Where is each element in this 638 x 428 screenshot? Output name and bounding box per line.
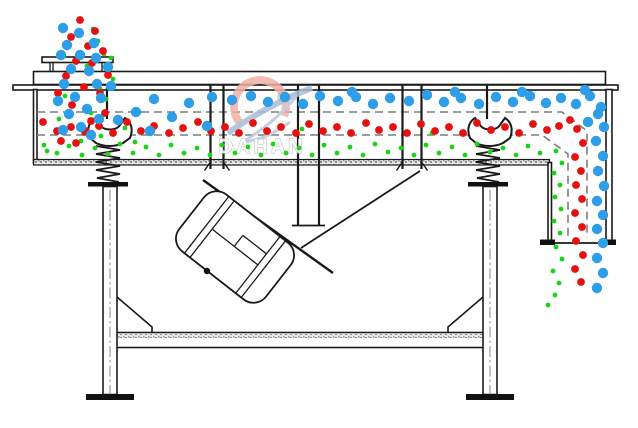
particle-dot	[284, 151, 289, 156]
particle-dot	[91, 27, 99, 35]
particle-dot	[80, 153, 85, 158]
particle-dot	[53, 96, 63, 106]
particle-dot	[89, 38, 99, 48]
particle-dot	[99, 134, 104, 139]
particle-dot	[347, 129, 355, 137]
particle-dot	[335, 151, 340, 156]
particle-dot	[87, 117, 95, 125]
particle-dot	[42, 143, 47, 148]
particle-dot	[184, 98, 194, 108]
particle-dot	[592, 196, 602, 206]
particle-dot	[546, 303, 551, 308]
particle-dot	[551, 269, 556, 274]
particle-dot	[473, 119, 481, 127]
particle-dot	[76, 16, 84, 24]
particle-dot	[475, 142, 480, 147]
particle-dot	[58, 23, 68, 33]
particle-dot	[167, 112, 177, 122]
particle-dot	[459, 129, 467, 137]
particle-dot	[207, 92, 217, 102]
particle-dot	[333, 96, 343, 106]
particle-dot	[75, 50, 85, 60]
particle-dot	[169, 143, 174, 148]
particle-dot	[58, 125, 68, 135]
particle-dot	[103, 62, 113, 72]
particle-dot	[106, 152, 111, 157]
right-gusset	[448, 297, 483, 333]
particle-dot	[541, 98, 551, 108]
particle-dot	[488, 150, 493, 155]
particle-dot	[54, 89, 62, 97]
particle-dot	[450, 145, 455, 150]
particle-dot	[389, 123, 397, 131]
particle-dot	[80, 83, 88, 91]
particle-dot	[508, 97, 518, 107]
particle-dot	[96, 93, 106, 103]
particle-dot	[259, 153, 264, 158]
particle-dot	[194, 118, 202, 126]
particle-dot	[592, 224, 602, 234]
particle-dot	[220, 143, 225, 148]
particle-dot	[202, 121, 212, 131]
particle-dot	[599, 181, 609, 191]
particle-dot	[277, 123, 285, 131]
particle-dot	[487, 126, 495, 134]
particle-dot	[501, 146, 506, 151]
particle-dot	[554, 149, 559, 154]
particle-dot	[131, 151, 136, 156]
particle-dot	[67, 144, 72, 149]
particle-dot	[526, 144, 531, 149]
particle-dot	[598, 151, 608, 161]
particle-dot	[560, 257, 565, 262]
particle-dot	[92, 79, 102, 89]
particle-dot	[445, 123, 453, 131]
particle-dot	[123, 126, 128, 131]
particle-dot	[70, 92, 80, 102]
particle-dot	[417, 120, 425, 128]
particle-dot	[104, 71, 112, 79]
particle-dot	[554, 245, 559, 250]
particle-dot	[45, 149, 50, 154]
particle-dot	[578, 195, 586, 203]
particle-dot	[292, 129, 300, 137]
particle-dot	[361, 153, 366, 158]
particle-dot	[463, 153, 468, 158]
particle-dot	[91, 53, 101, 63]
particle-dot	[123, 118, 131, 126]
particle-dot	[221, 123, 229, 131]
particle-dot	[598, 268, 608, 278]
particle-dot	[592, 283, 602, 293]
particle-dot	[263, 97, 273, 107]
particle-dot	[552, 171, 557, 176]
particle-dot	[165, 129, 173, 137]
particle-dot	[412, 153, 417, 158]
particle-dot	[557, 281, 562, 286]
particle-dot	[580, 85, 590, 95]
particle-dot	[552, 219, 557, 224]
particle-dot	[62, 40, 72, 50]
particle-dot	[76, 122, 86, 132]
vibration-motor	[169, 185, 300, 309]
particle-dot	[474, 99, 484, 109]
diagram-canvas: ® DAHAN	[0, 0, 638, 428]
particle-dot	[571, 209, 579, 217]
particles-medium-red	[39, 16, 587, 286]
particle-dot	[249, 119, 257, 127]
particle-dot	[182, 151, 187, 156]
particle-dot	[208, 153, 213, 158]
particle-dot	[195, 146, 200, 151]
particle-dot	[583, 117, 593, 127]
particle-dot	[109, 129, 117, 137]
left-foot-pad	[86, 394, 134, 400]
particle-dot	[106, 81, 116, 91]
particle-dot	[179, 124, 187, 132]
particle-dot	[57, 117, 62, 122]
particle-dot	[501, 123, 509, 131]
particle-dot	[66, 64, 76, 74]
particle-dot	[233, 151, 238, 156]
particle-dot	[431, 127, 439, 135]
particle-dot	[577, 167, 585, 175]
particle-dot	[109, 56, 114, 61]
particle-dot	[271, 142, 276, 147]
particle-dot	[55, 151, 60, 156]
particle-dot	[137, 127, 145, 135]
particle-dot	[368, 99, 378, 109]
particle-dot	[84, 66, 94, 76]
base-beam	[110, 297, 490, 348]
screen-box-lid	[13, 72, 618, 91]
particle-dot	[558, 231, 563, 236]
particle-dot	[450, 87, 460, 97]
particle-dot	[67, 123, 75, 131]
particle-dot	[560, 161, 565, 166]
particle-dot	[64, 109, 74, 119]
particle-dot	[573, 125, 581, 133]
particle-dot	[149, 94, 159, 104]
particle-dot	[385, 93, 395, 103]
particle-dot	[67, 33, 75, 41]
particle-dot	[591, 136, 601, 146]
particle-dot	[86, 130, 96, 140]
particle-dot	[577, 278, 585, 286]
particle-dot	[362, 119, 370, 127]
particle-dot	[300, 127, 305, 132]
particle-dot	[491, 92, 501, 102]
particle-dot	[246, 91, 256, 101]
particle-dot	[59, 79, 69, 89]
particle-dot	[322, 143, 327, 148]
particle-dot	[39, 118, 47, 126]
particle-dot	[598, 210, 608, 220]
particle-dot	[571, 153, 579, 161]
linear-vibrating-screen-diagram: ® DAHAN	[0, 0, 638, 428]
particle-dot	[263, 127, 271, 135]
particle-dot	[375, 126, 383, 134]
particle-dot	[529, 120, 537, 128]
particle-dot	[538, 151, 543, 156]
right-foot-pad	[466, 394, 514, 400]
particle-dot	[133, 140, 138, 145]
particle-dot	[558, 183, 563, 188]
particle-dot	[333, 123, 341, 131]
particle-dot	[559, 207, 564, 212]
particle-dot	[437, 151, 442, 156]
particle-dot	[246, 145, 251, 150]
particle-dot	[439, 97, 449, 107]
particle-dot	[68, 101, 76, 109]
particle-dot	[297, 146, 302, 151]
particle-dot	[113, 115, 123, 125]
particle-dot	[144, 145, 149, 150]
particle-dot	[404, 96, 414, 106]
particle-dot	[579, 139, 587, 147]
left-gusset	[117, 297, 152, 333]
particle-dot	[82, 104, 92, 114]
particle-dot	[227, 95, 237, 105]
particle-dot	[571, 99, 581, 109]
particle-dot	[235, 129, 243, 137]
particle-dot	[118, 142, 123, 147]
particle-dot	[57, 137, 65, 145]
particles-coarse-blue	[53, 23, 609, 293]
machine-structure	[13, 57, 618, 400]
particle-dot	[298, 99, 308, 109]
particle-dot	[424, 143, 429, 148]
particle-dot	[422, 90, 432, 100]
particle-dot	[63, 94, 68, 99]
particle-dot	[543, 126, 551, 134]
particle-dot	[315, 91, 325, 101]
right-support-leg	[466, 187, 514, 401]
particle-dot	[145, 126, 155, 136]
particle-dot	[598, 238, 608, 248]
particle-dot	[386, 150, 391, 155]
particle-dot	[74, 28, 84, 38]
particle-dot	[593, 109, 603, 119]
particle-dot	[566, 116, 574, 124]
particle-dot	[310, 153, 315, 158]
particle-dot	[553, 293, 558, 298]
motor-bolt	[204, 268, 210, 274]
particle-dot	[131, 107, 141, 117]
discharge-chute	[540, 163, 616, 246]
particle-dot	[514, 153, 519, 158]
particle-dot	[99, 47, 107, 55]
particle-dot	[515, 129, 523, 137]
particle-dot	[553, 195, 558, 200]
particle-dot	[157, 153, 162, 158]
left-support-leg	[86, 187, 134, 401]
particle-dot	[280, 92, 290, 102]
particle-dot	[592, 253, 602, 263]
particle-dot	[348, 145, 353, 150]
particle-dot	[93, 146, 98, 151]
particle-dot	[72, 139, 80, 147]
particle-dot	[347, 87, 357, 97]
particle-dot	[555, 122, 563, 130]
particle-dot	[373, 142, 378, 147]
particle-dot	[319, 127, 327, 135]
particle-dot	[571, 265, 579, 273]
particle-dot	[94, 114, 104, 124]
particle-dot	[305, 120, 313, 128]
particle-dot	[111, 77, 116, 82]
particle-dot	[517, 87, 527, 97]
particle-dot	[403, 129, 411, 137]
particle-dot	[556, 93, 566, 103]
particle-dot	[399, 146, 404, 151]
particle-dot	[572, 181, 580, 189]
particle-dot	[572, 237, 580, 245]
particle-dot	[599, 122, 609, 132]
particle-dot	[56, 50, 66, 60]
particle-dot	[593, 166, 603, 176]
particle-dot	[578, 223, 586, 231]
particle-dot	[579, 251, 587, 259]
